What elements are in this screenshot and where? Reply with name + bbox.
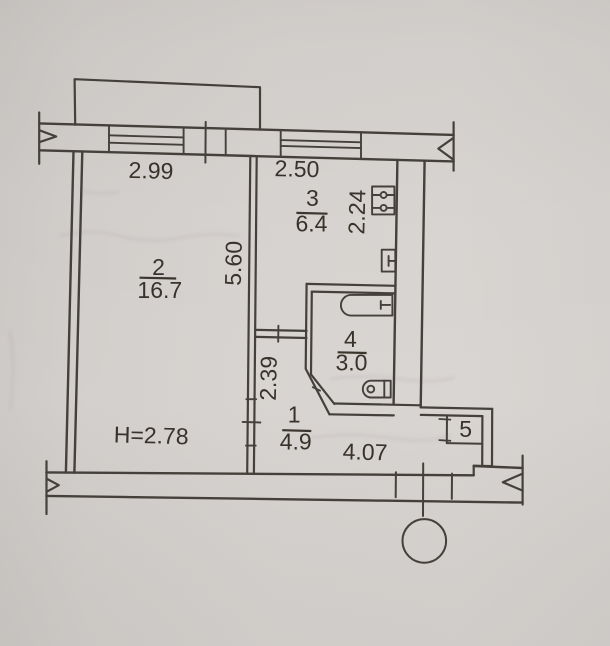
svg-text:5.60: 5.60 (220, 241, 247, 286)
svg-text:2.39: 2.39 (255, 356, 282, 401)
svg-text:3: 3 (306, 185, 319, 211)
svg-text:4: 4 (344, 326, 357, 352)
svg-text:3.0: 3.0 (336, 350, 368, 376)
svg-text:4.9: 4.9 (280, 428, 312, 454)
svg-text:2.24: 2.24 (343, 189, 370, 235)
svg-text:16.7: 16.7 (137, 277, 182, 303)
svg-text:4.07: 4.07 (342, 438, 387, 465)
svg-text:1: 1 (288, 402, 301, 428)
svg-text:H=2.78: H=2.78 (113, 421, 188, 449)
svg-text:2.50: 2.50 (274, 155, 319, 182)
svg-text:6.4: 6.4 (296, 211, 328, 237)
svg-text:5: 5 (459, 416, 472, 442)
svg-text:2.99: 2.99 (128, 157, 173, 184)
